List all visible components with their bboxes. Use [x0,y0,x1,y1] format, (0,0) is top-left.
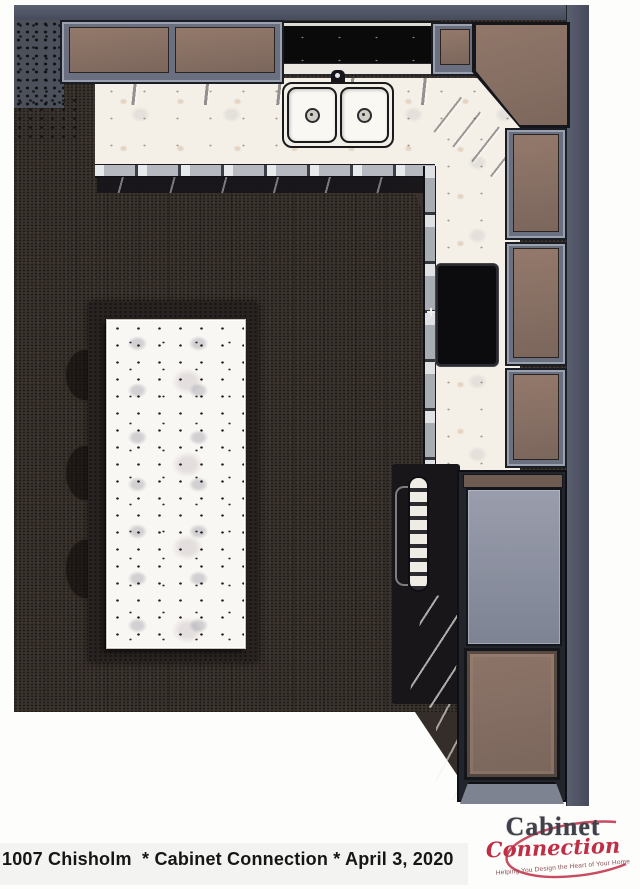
sink-bowl-right [340,87,390,143]
cabinet-door-top [513,248,559,358]
counter-front-edge-top [95,164,435,178]
counter-plus-mark [427,308,435,316]
tall-unit-top-strip [463,474,563,488]
cabinet-door-top [69,27,169,73]
upper-cabinet-right-3 [505,368,567,468]
speckled-wall-corner [14,20,64,108]
cooktop [436,264,498,366]
cabinet-door-top [513,134,559,232]
double-sink [282,82,394,148]
pantry-cabinet-door [464,648,560,780]
base-cabinet-shadow-top [97,177,434,193]
upper-cabinet-right-1 [505,128,567,240]
appliance-handle-outline [395,486,408,586]
floor-speckles [14,96,78,140]
upper-cabinet-left-group [60,20,284,84]
cabinet-door-top [440,29,470,65]
caption: 1007 Chisholm * Cabinet Connection * Apr… [2,849,454,870]
upper-cabinet-right-2 [505,242,567,366]
kitchen-rendering [0,0,640,812]
cabinet-door-top [175,27,275,73]
island-countertop [106,319,246,649]
tall-unit-base [460,782,564,804]
cabinet-connection-logo: Cabinet Connection Helping You Design th… [466,806,640,889]
refrigerator-top [466,488,562,646]
drain-icon [305,108,320,123]
appliance-handle [410,478,427,590]
upper-cabinet-beside-window [431,22,479,76]
cabinet-door-top [513,374,559,460]
counter-front-edge-right [423,166,436,472]
window-sill [277,63,437,75]
sink-bowl-left [287,87,337,143]
drain-icon [357,108,372,123]
design-sheet: 1007 Chisholm * Cabinet Connection * Apr… [0,0,640,889]
